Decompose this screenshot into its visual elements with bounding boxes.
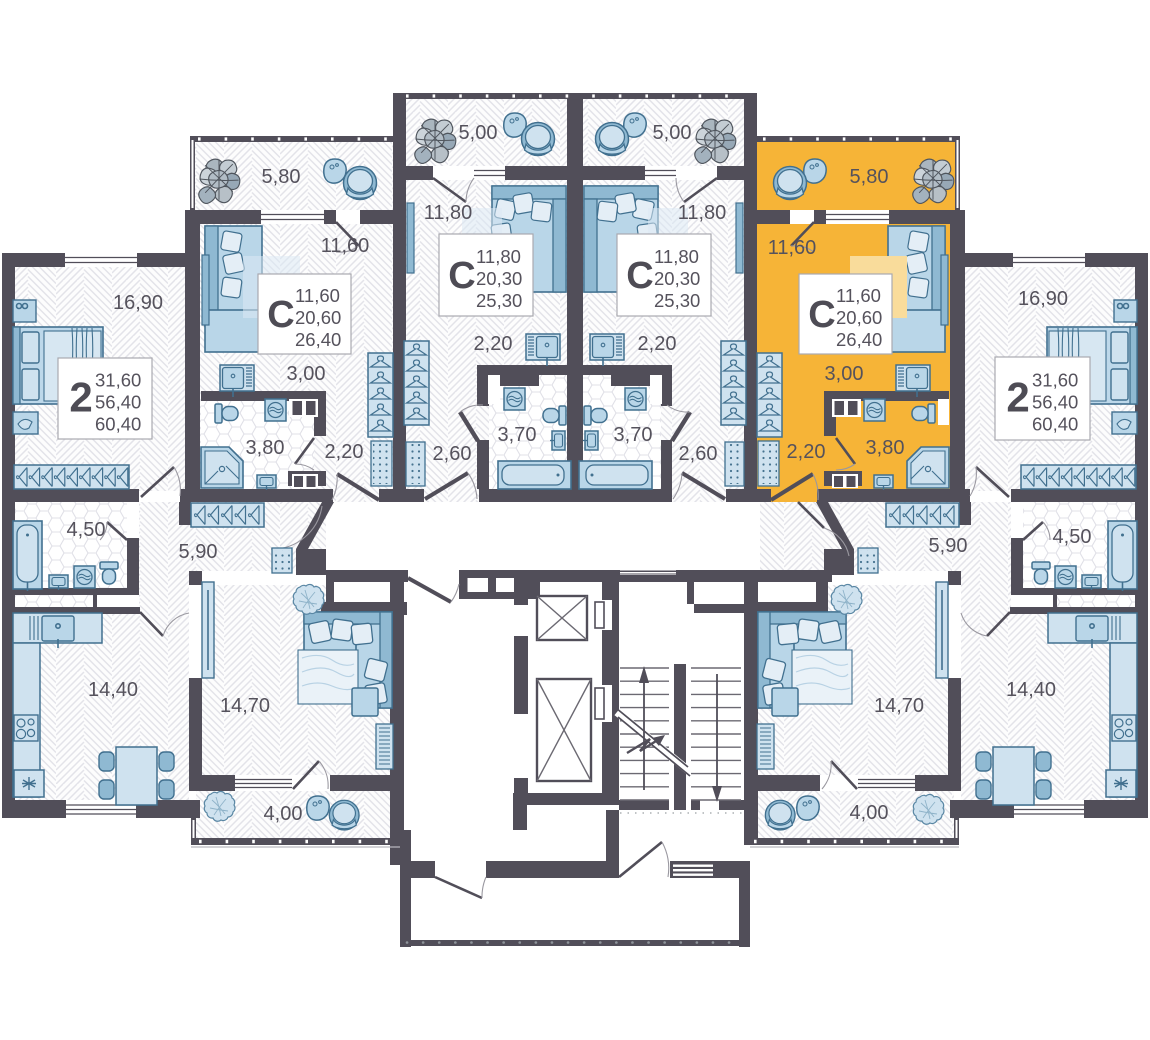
svg-text:11,60: 11,60 xyxy=(836,285,881,306)
svg-text:31,60: 31,60 xyxy=(95,370,141,391)
svg-text:14,40: 14,40 xyxy=(1006,679,1056,701)
svg-text:60,40: 60,40 xyxy=(95,414,141,435)
svg-text:14,70: 14,70 xyxy=(220,695,270,717)
svg-text:11,60: 11,60 xyxy=(321,235,370,257)
svg-text:C: C xyxy=(448,255,475,297)
svg-text:2,60: 2,60 xyxy=(679,443,718,465)
svg-text:25,30: 25,30 xyxy=(654,290,700,311)
svg-text:20,30: 20,30 xyxy=(654,268,700,289)
svg-text:56,40: 56,40 xyxy=(1032,392,1078,413)
svg-text:2,20: 2,20 xyxy=(638,333,677,355)
svg-text:20,30: 20,30 xyxy=(476,268,522,289)
svg-text:11,80: 11,80 xyxy=(424,202,473,224)
svg-text:31,60: 31,60 xyxy=(1032,370,1078,391)
svg-text:2,20: 2,20 xyxy=(474,333,513,355)
svg-text:26,40: 26,40 xyxy=(295,329,341,350)
svg-text:20,60: 20,60 xyxy=(295,307,341,328)
svg-text:3,70: 3,70 xyxy=(498,424,537,446)
svg-text:5,80: 5,80 xyxy=(850,166,889,188)
svg-text:5,90: 5,90 xyxy=(929,535,968,557)
svg-text:3,00: 3,00 xyxy=(287,363,326,385)
svg-text:3,00: 3,00 xyxy=(825,363,864,385)
svg-text:2: 2 xyxy=(69,374,92,421)
svg-text:20,60: 20,60 xyxy=(836,307,882,328)
svg-text:2: 2 xyxy=(1006,374,1029,421)
svg-text:14,40: 14,40 xyxy=(88,679,138,701)
svg-text:11,80: 11,80 xyxy=(654,246,699,267)
svg-text:3,80: 3,80 xyxy=(866,437,905,459)
svg-text:60,40: 60,40 xyxy=(1032,414,1078,435)
svg-text:4,50: 4,50 xyxy=(1053,526,1092,548)
svg-text:4,00: 4,00 xyxy=(850,802,889,824)
svg-text:16,90: 16,90 xyxy=(1018,288,1068,310)
svg-text:56,40: 56,40 xyxy=(95,392,141,413)
svg-text:4,50: 4,50 xyxy=(67,519,106,541)
svg-text:11,80: 11,80 xyxy=(476,246,521,267)
svg-text:C: C xyxy=(808,294,835,336)
svg-text:5,00: 5,00 xyxy=(653,122,692,144)
svg-text:3,70: 3,70 xyxy=(614,424,653,446)
svg-text:2,20: 2,20 xyxy=(325,441,364,463)
svg-text:11,60: 11,60 xyxy=(768,237,817,259)
svg-text:26,40: 26,40 xyxy=(836,329,882,350)
svg-text:5,90: 5,90 xyxy=(179,541,218,563)
svg-text:5,00: 5,00 xyxy=(459,122,498,144)
svg-text:2,60: 2,60 xyxy=(433,443,472,465)
svg-text:25,30: 25,30 xyxy=(476,290,522,311)
svg-text:11,80: 11,80 xyxy=(678,202,727,224)
svg-text:2,20: 2,20 xyxy=(787,441,826,463)
svg-text:4,00: 4,00 xyxy=(264,803,303,825)
svg-text:C: C xyxy=(267,294,294,336)
svg-text:3,80: 3,80 xyxy=(246,437,285,459)
svg-text:14,70: 14,70 xyxy=(874,695,924,717)
svg-text:5,80: 5,80 xyxy=(262,166,301,188)
svg-text:16,90: 16,90 xyxy=(113,292,163,314)
svg-text:11,60: 11,60 xyxy=(295,285,340,306)
svg-text:C: C xyxy=(626,255,653,297)
